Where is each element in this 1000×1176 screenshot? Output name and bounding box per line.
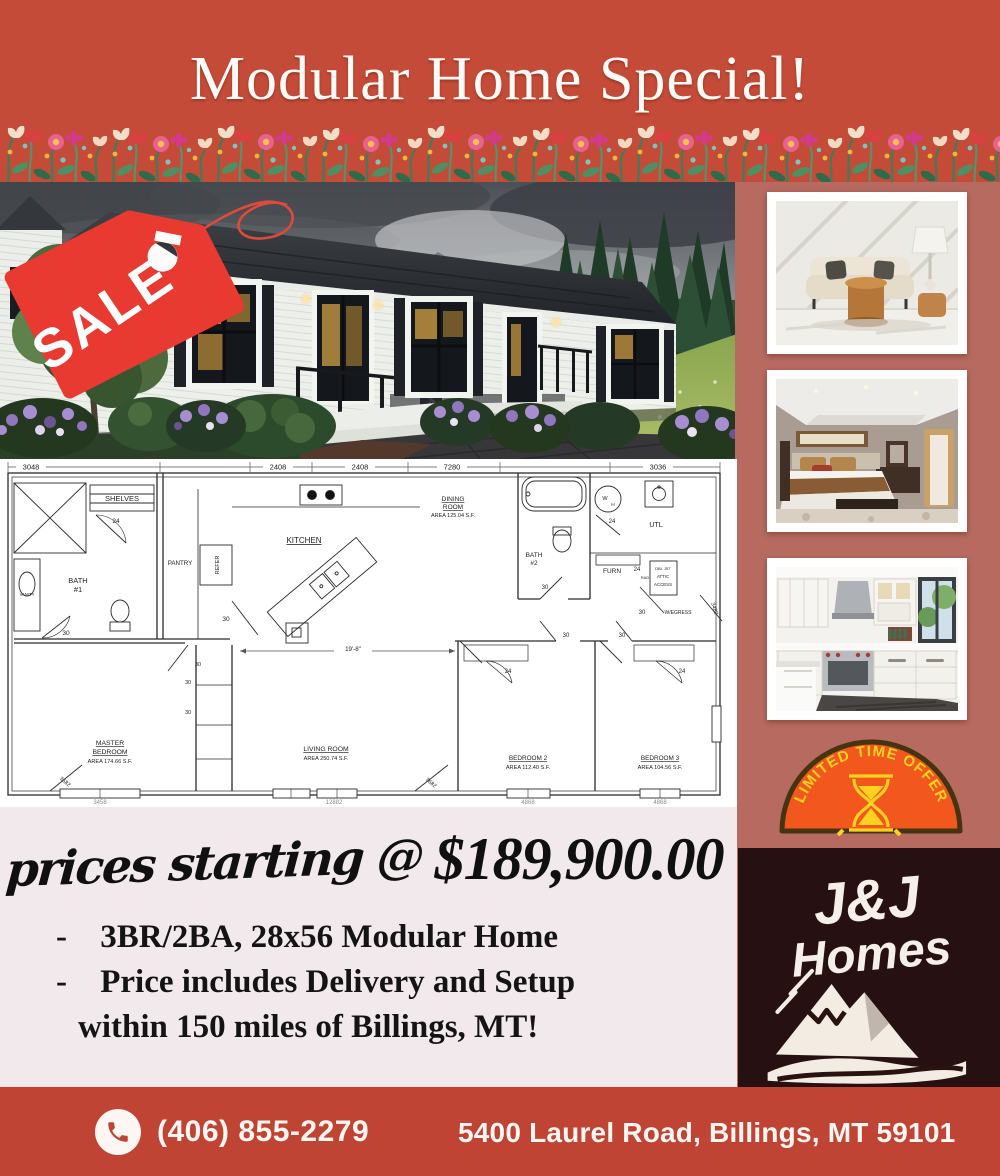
plan-top-dims: 3048 2408 2408 7280 3036 — [8, 461, 720, 472]
label-bath2: BATH — [526, 552, 543, 559]
label-master1: MASTER — [96, 740, 124, 747]
range-hood — [832, 581, 874, 619]
label-kitchen: KITCHEN — [286, 536, 321, 545]
label-living-area: AREA 250.74 S.F. — [304, 756, 349, 762]
photo-living-room — [767, 192, 967, 354]
price-panel: prices starting @ $189,900.00 - 3BR/2BA,… — [0, 807, 737, 1087]
label-living: LIVING ROOM — [303, 746, 349, 753]
phone-contact: (406) 855-2279 — [95, 1109, 369, 1155]
label-bed3-closet: 24 — [679, 669, 686, 675]
label-door-living-size: 3682 — [424, 777, 437, 789]
label-bed2: BEDROOM 2 — [509, 755, 548, 762]
flower-border-icon — [0, 122, 1000, 184]
label-dining-area: AREA 125.04 S.F. — [431, 513, 475, 519]
dim-top-3: 2408 — [352, 463, 369, 472]
page-title: Modular Home Special! — [0, 44, 1000, 115]
phone-icon — [95, 1109, 141, 1155]
label-shelves: SHELVES — [105, 494, 139, 503]
island — [776, 661, 820, 711]
phone-number: (406) 855-2279 — [157, 1115, 369, 1149]
label-closet-30b: 30 — [185, 710, 191, 716]
photo-bedroom — [767, 370, 967, 532]
label-rad: RAD — [641, 575, 650, 580]
label-attic2: ACCESS — [654, 582, 672, 587]
dim-top-2: 2408 — [270, 463, 287, 472]
main-photo-modular-home: SALE — [0, 182, 737, 459]
dim-bottom-4: 4868 — [653, 800, 667, 806]
label-bed2-door: 30 — [563, 633, 570, 639]
plan-bottom-dims: 3458 12882 4868 4868 — [93, 800, 667, 806]
bullet-dash: - — [56, 919, 92, 956]
label-dining2: ROOM — [443, 504, 463, 511]
logo-line2: Homes — [789, 921, 953, 988]
label-utl: UTL — [649, 522, 662, 529]
feature-list: - 3BR/2BA, 28x56 Modular Home - Price in… — [0, 911, 737, 1046]
price-script-text: prices starting @ — [4, 829, 424, 899]
label-furn: FURN — [603, 568, 621, 575]
plan-kitchen-fixtures — [267, 485, 376, 643]
dim-bottom-2: 12882 — [326, 800, 343, 806]
dim-bottom-3: 4868 — [521, 800, 535, 806]
plan-bath2-fixtures — [522, 477, 586, 599]
header-band: Modular Home Special! — [0, 0, 1000, 128]
label-door-master-size: 3682 — [58, 776, 71, 788]
dim-top-4: 7280 — [444, 463, 461, 472]
window — [918, 577, 956, 643]
label-door-util: 3482 — [709, 602, 718, 616]
label-master-door: 30 — [195, 662, 201, 668]
stove — [822, 651, 874, 691]
plan-utility-sink — [645, 481, 673, 507]
feature-item-2-continued: within 150 miles of Billings, MT! — [0, 1009, 737, 1046]
label-refer: REFER — [215, 556, 221, 575]
label-wh-h: H — [611, 502, 615, 508]
label-master2: BEDROOM — [92, 749, 127, 756]
label-vanity: VANITY — [20, 592, 35, 597]
price-amount: $189,900.00 — [435, 825, 724, 894]
feature-item-2-text: Price includes Delivery and Setup — [100, 964, 575, 1000]
window-4 — [596, 324, 674, 404]
feature-item-2: - Price includes Delivery and Setup — [0, 964, 737, 1001]
label-wh-size: 24 — [609, 519, 616, 525]
plan-living-dim: 19'-8" — [240, 643, 455, 654]
label-bath2-door: 30 — [542, 585, 549, 591]
label-bath1-num: #1 — [74, 585, 82, 594]
price-line: prices starting @ $189,900.00 — [6, 825, 734, 894]
address-text: 5400 Laurel Road, Billings, MT 59101 — [458, 1117, 955, 1149]
label-attic0: DBL JST — [655, 566, 671, 571]
window-2 — [394, 296, 483, 398]
plan-bottom-windows — [60, 706, 721, 798]
plan-closet-bath1 — [14, 483, 154, 638]
label-egress-size: 30 — [639, 610, 646, 616]
label-bed3-area: AREA 104.56 S.F. — [638, 765, 683, 771]
label-bath1: BATH — [68, 576, 87, 585]
photo-kitchen — [767, 558, 967, 720]
label-bath2-num: #2 — [530, 560, 538, 567]
label-dining1: DINING — [442, 496, 465, 503]
dim-top-1: 3048 — [23, 463, 40, 472]
bullet-dash-2: - — [56, 964, 92, 1001]
sidebar: LIMITED TIME OFFER J&J Homes — [735, 182, 1000, 1087]
floor-plan: 3048 2408 2408 7280 3036 SHELVES — [0, 459, 737, 807]
label-furn-size: 24 — [634, 567, 641, 573]
label-bed2-area: AREA 112.40 S.F. — [506, 765, 551, 771]
label-attic1: ATTIC — [657, 574, 669, 579]
label-wh-w: W — [602, 496, 608, 502]
company-logo-block: J&J Homes — [738, 848, 1000, 1087]
label-bed2-closet: 24 — [505, 669, 512, 675]
footer-band: (406) 855-2279 5400 Laurel Road, Billing… — [0, 1087, 1000, 1176]
feature-item-1-text: 3BR/2BA, 28x56 Modular Home — [100, 919, 558, 955]
mountain-logo-icon — [768, 971, 966, 1084]
french-door — [312, 290, 374, 404]
label-bed3-door: 30 — [619, 633, 626, 639]
label-kitchen-door: 30 — [222, 616, 230, 623]
dim-bottom-1: 3458 — [93, 800, 107, 806]
label-pantry: PANTRY — [168, 560, 193, 567]
label-bed3: BEDROOM 3 — [641, 755, 680, 762]
feature-item-1: - 3BR/2BA, 28x56 Modular Home — [0, 919, 737, 956]
label-shelves-size: 24 — [112, 518, 120, 525]
label-egress: W/EGRESS — [665, 610, 693, 616]
label-bath1-door: 30 — [62, 630, 70, 637]
label-closet-30a: 30 — [185, 680, 191, 686]
label-master-area: AREA 174.66 S.F. — [88, 759, 133, 765]
label-living-dim: 19'-8" — [345, 646, 361, 653]
limited-time-offer-badge: LIMITED TIME OFFER — [775, 738, 967, 836]
flyer-page: Modular Home Special! — [0, 0, 1000, 1176]
dim-top-5: 3036 — [650, 463, 667, 472]
